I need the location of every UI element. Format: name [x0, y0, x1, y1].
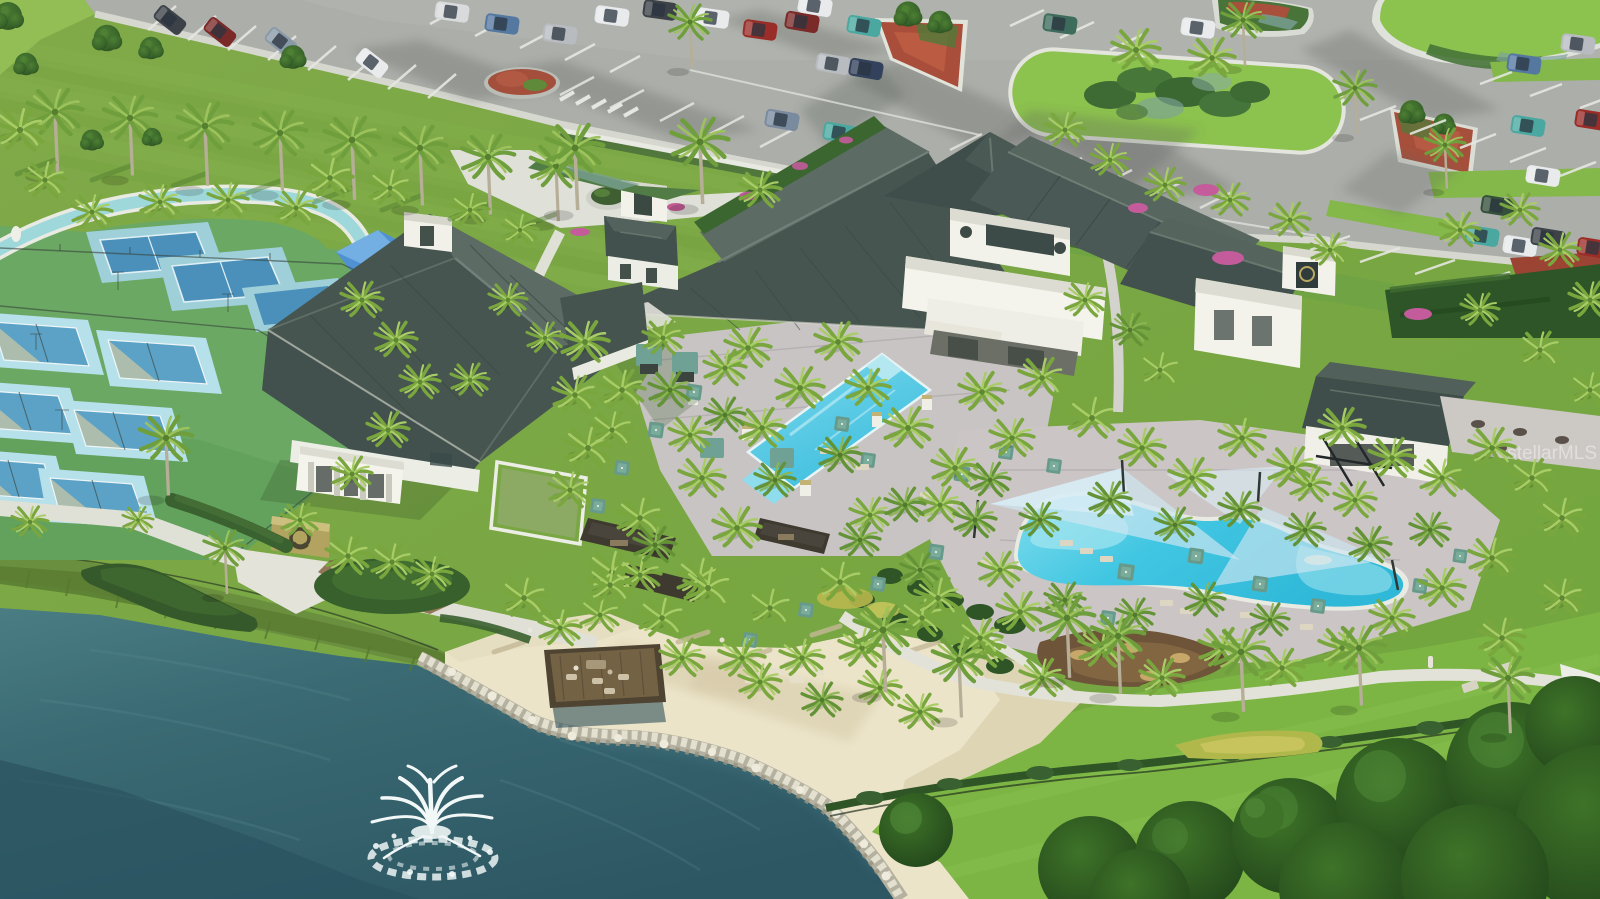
- svg-text:stellarMLS: stellarMLS: [1507, 443, 1597, 464]
